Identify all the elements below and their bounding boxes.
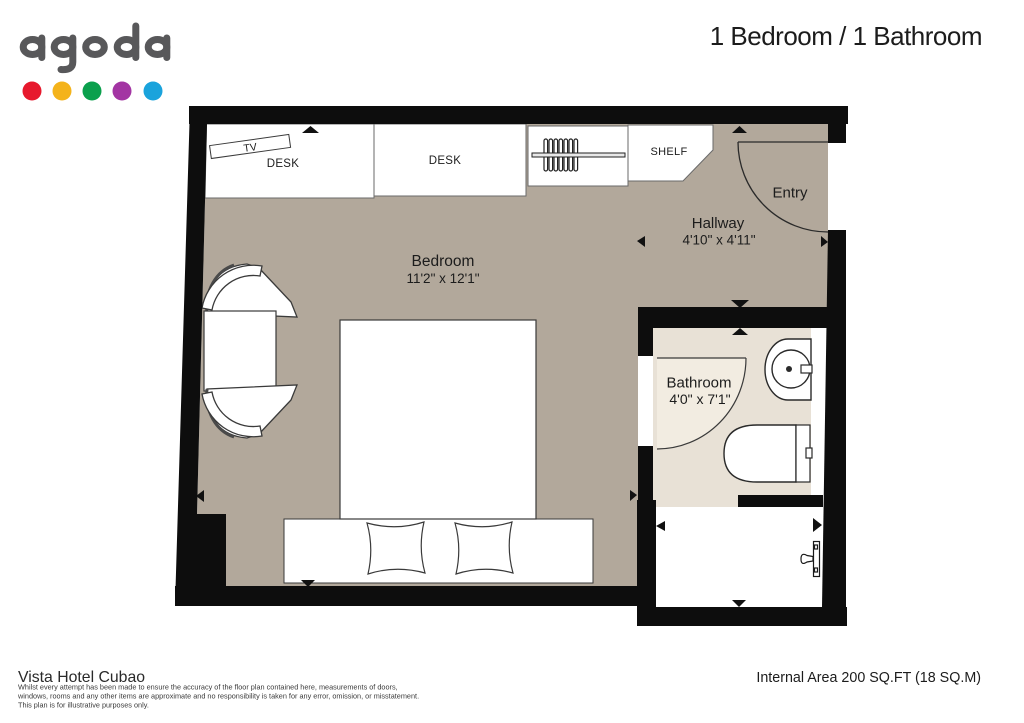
svg-text:1 Bedroom / 1 Bathroom: 1 Bedroom / 1 Bathroom [710, 21, 982, 51]
svg-text:TV: TV [243, 141, 258, 155]
svg-text:DESK: DESK [429, 155, 462, 167]
svg-text:windows, rooms and any other i: windows, rooms and any other items are a… [17, 692, 419, 701]
svg-text:4'10" x 4'11": 4'10" x 4'11" [682, 233, 755, 248]
svg-text:SHELF: SHELF [651, 146, 688, 158]
svg-text:DESK: DESK [267, 158, 300, 170]
svg-text:4'0" x 7'1": 4'0" x 7'1" [669, 391, 730, 407]
svg-text:This plan is for illustrative: This plan is for illustrative purposes o… [18, 701, 149, 710]
svg-text:Entry: Entry [772, 185, 808, 202]
svg-text:Hallway: Hallway [692, 215, 745, 232]
svg-text:Bedroom: Bedroom [412, 253, 475, 270]
svg-text:11'2" x 12'1": 11'2" x 12'1" [406, 271, 479, 286]
svg-text:Internal Area 200 SQ.FT (18 SQ: Internal Area 200 SQ.FT (18 SQ.M) [756, 670, 981, 686]
svg-text:Bathroom: Bathroom [666, 375, 731, 392]
svg-text:Whilst every attempt has been: Whilst every attempt has been made to en… [18, 683, 398, 692]
